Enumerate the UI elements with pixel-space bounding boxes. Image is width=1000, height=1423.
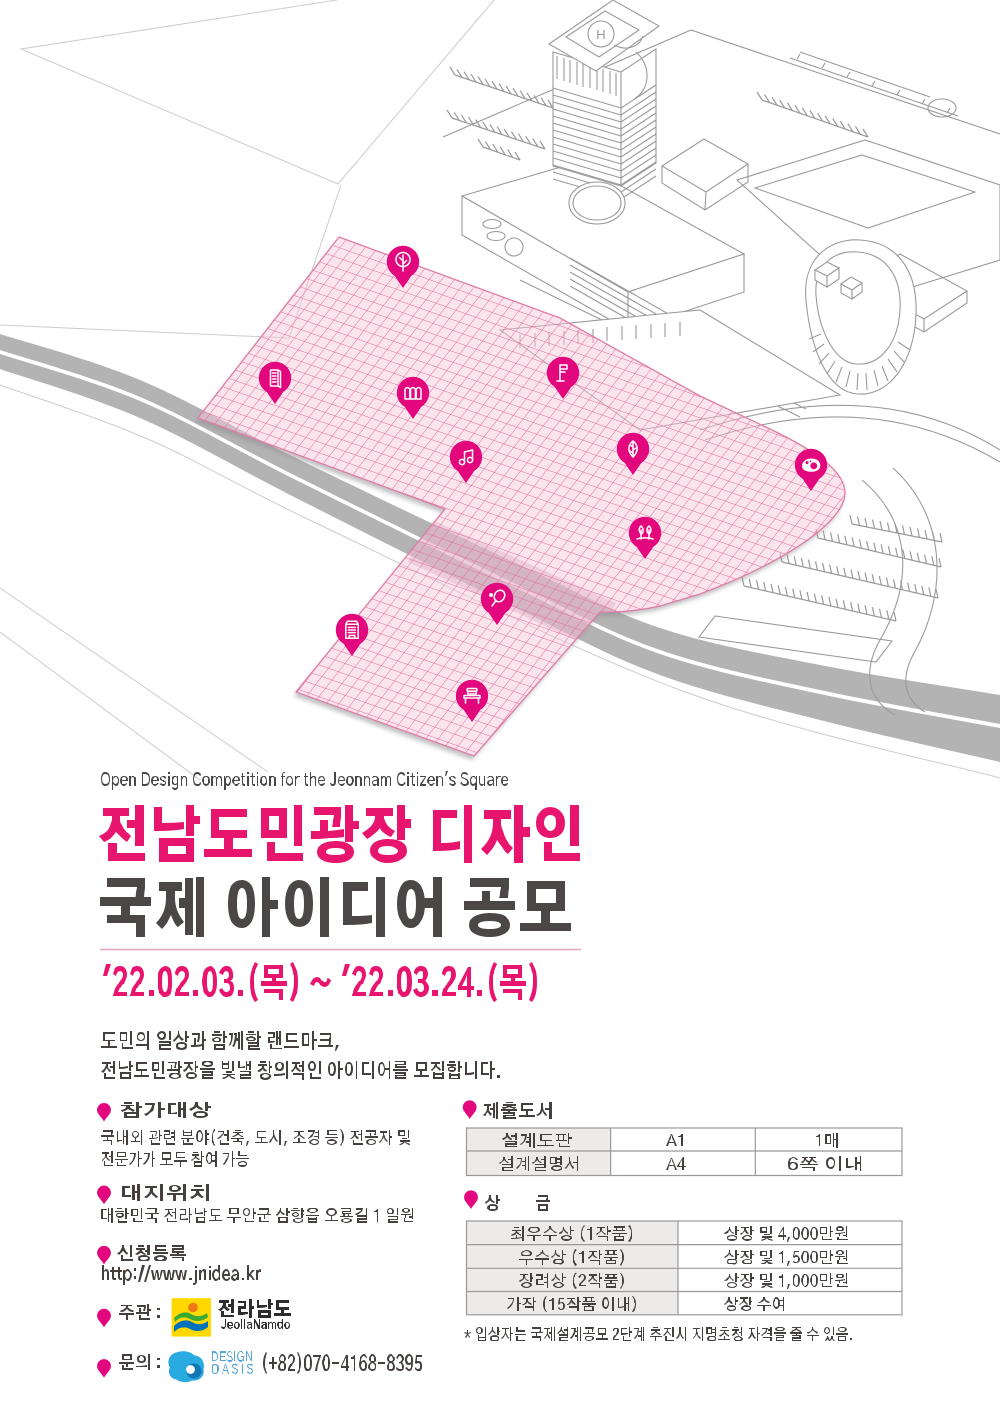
svg-text:H: H bbox=[596, 27, 605, 42]
